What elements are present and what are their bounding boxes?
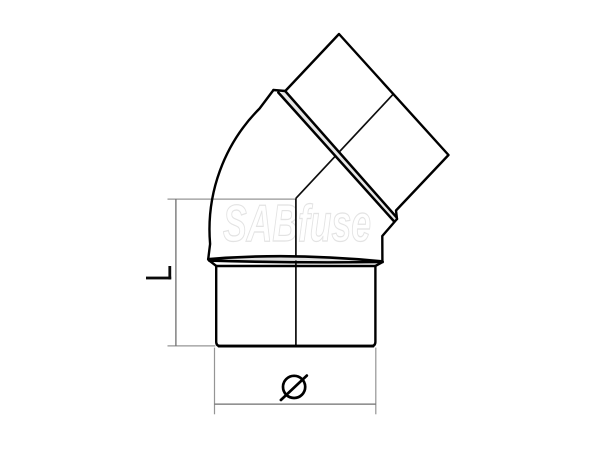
svg-text:SABfuse: SABfuse [223,195,371,253]
